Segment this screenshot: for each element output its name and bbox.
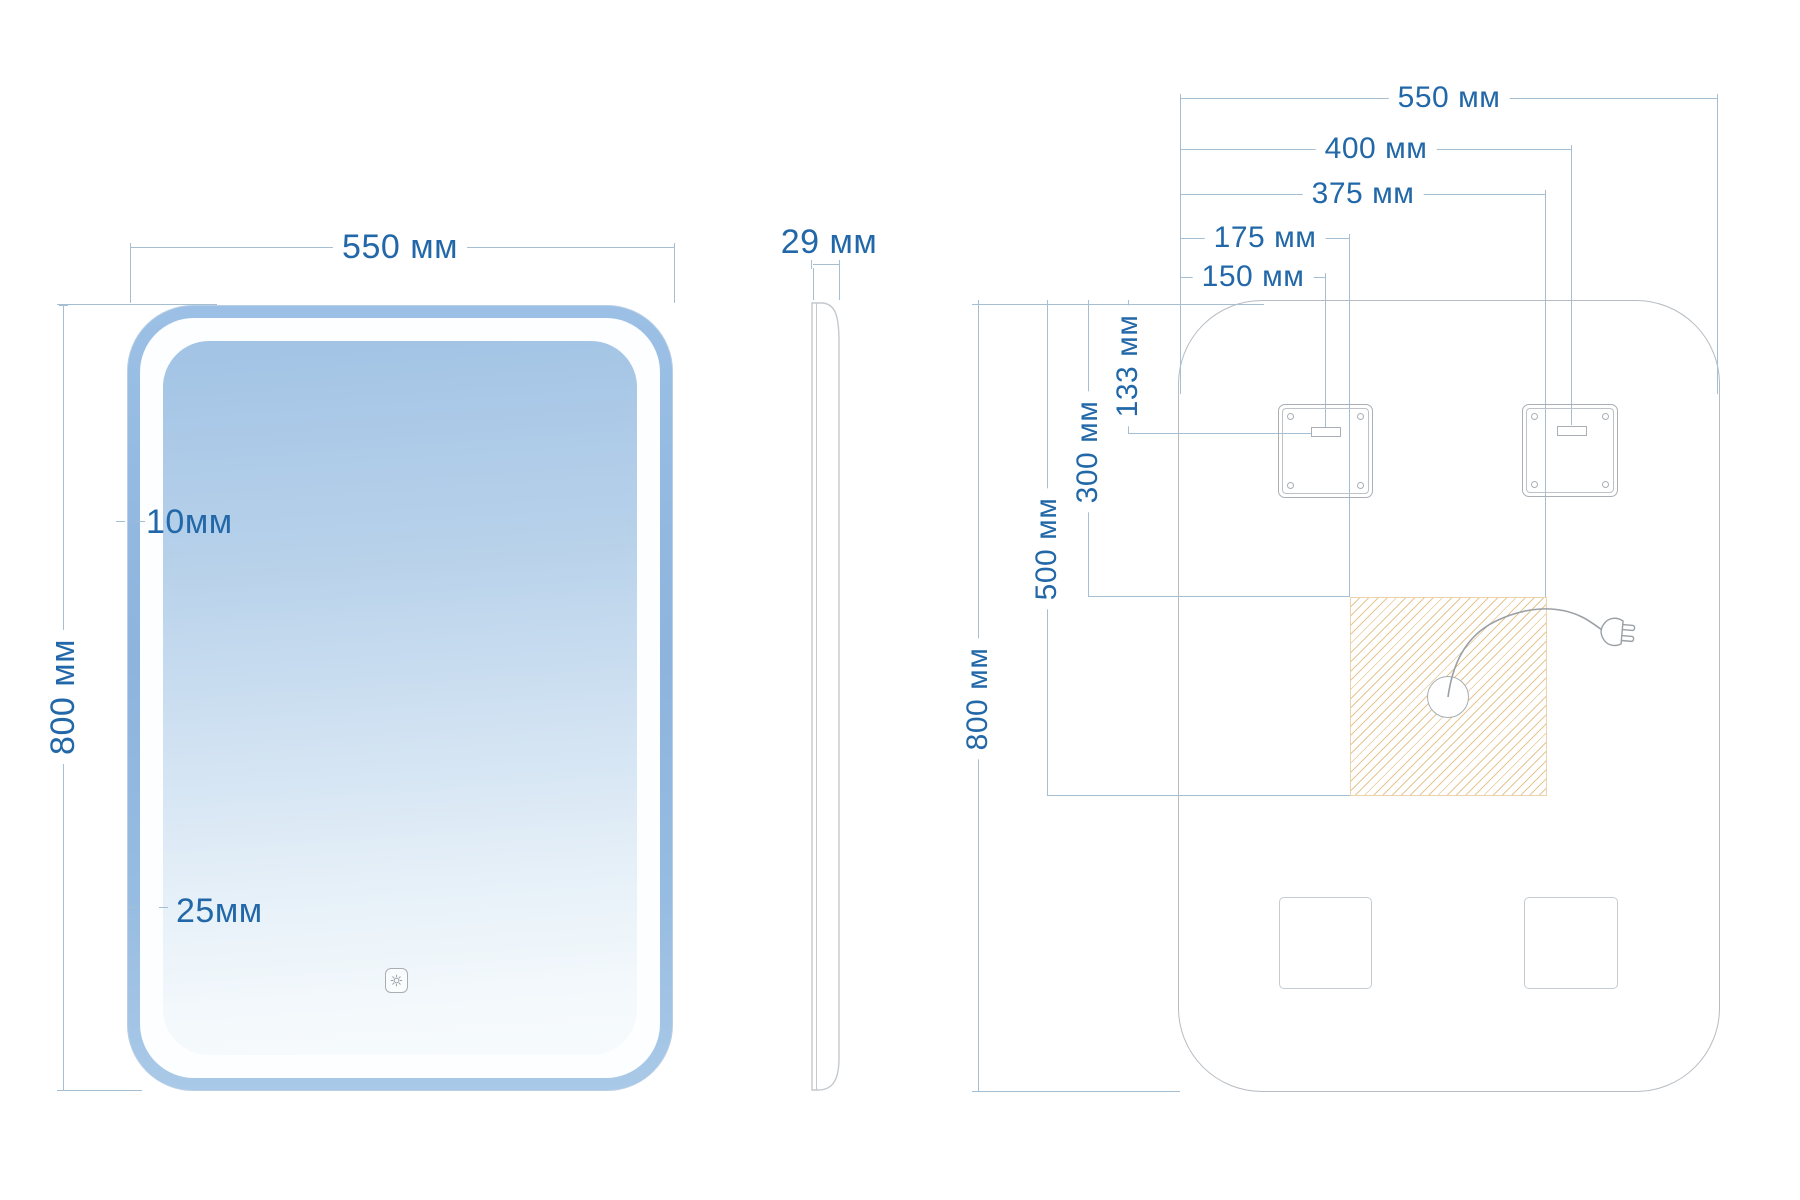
power-cable — [1448, 609, 1606, 697]
frame-width-label: 25мм — [176, 894, 263, 928]
back-ext-left-common — [1180, 102, 1181, 394]
back-dim-800-label: 800 мм — [961, 639, 995, 760]
back-bottom-extension-line — [972, 1091, 1180, 1092]
back-dim-400-label: 400 мм — [1316, 132, 1437, 166]
mirror-side-profile — [780, 220, 900, 1110]
dim-tick — [59, 305, 68, 306]
front-width-label: 550 мм — [333, 228, 467, 266]
bottom-pad-left — [1279, 897, 1372, 989]
screw-hole — [1531, 481, 1538, 488]
frame-width-tick — [159, 907, 168, 908]
back-dim-500-connector — [1047, 795, 1350, 796]
front-height-ext-bottom — [57, 1090, 142, 1091]
screw-hole — [1531, 413, 1538, 420]
mirror-glass — [163, 341, 637, 1055]
front-width-ext-right — [674, 251, 675, 303]
dim-tick — [974, 1091, 983, 1092]
back-dim-133-label: 133 мм — [1111, 306, 1145, 427]
screw-hole — [1287, 482, 1294, 489]
power-plug-icon — [1600, 617, 1635, 647]
mounting-bracket-right — [1522, 404, 1618, 497]
back-dim-500-label: 500 мм — [1030, 489, 1064, 610]
bottom-pad-right — [1524, 897, 1618, 989]
mounting-bracket-left — [1278, 404, 1373, 498]
back-dim-375-label: 375 мм — [1303, 177, 1424, 211]
back-dim-overall-width-label: 550 мм — [1389, 81, 1510, 115]
back-ext-400 — [1571, 153, 1572, 425]
hanger-slot — [1311, 427, 1341, 437]
screw-hole — [1357, 413, 1364, 420]
back-dim-175-label: 175 мм — [1205, 221, 1326, 255]
bracket-inner-plate — [1526, 408, 1614, 493]
power-cable-and-plug — [1400, 580, 1660, 720]
led-band-tick — [116, 521, 125, 522]
back-dim-300-label: 300 мм — [1071, 392, 1105, 513]
frame-width-tick — [128, 907, 137, 908]
back-dim-300-connector — [1088, 596, 1350, 597]
screw-hole — [1287, 413, 1294, 420]
touch-sensor-icon — [385, 968, 408, 993]
screw-hole — [1602, 481, 1609, 488]
screw-hole — [1357, 482, 1364, 489]
back-ext-375 — [1545, 198, 1546, 597]
screw-hole — [1602, 413, 1609, 420]
mirror-front-view — [127, 305, 673, 1091]
bracket-inner-plate — [1282, 408, 1369, 494]
back-ext-overall-right — [1717, 102, 1718, 394]
led-band-label: 10мм — [146, 505, 233, 539]
front-width-ext-left — [130, 251, 131, 303]
front-height-label: 800 мм — [44, 630, 82, 764]
led-band-tick — [136, 521, 145, 522]
technical-drawing-canvas: 550 мм 800 мм 10мм 25мм 29 мм — [0, 0, 1800, 1200]
hanger-slot — [1557, 426, 1587, 436]
back-dim-150-label: 150 мм — [1193, 260, 1314, 294]
